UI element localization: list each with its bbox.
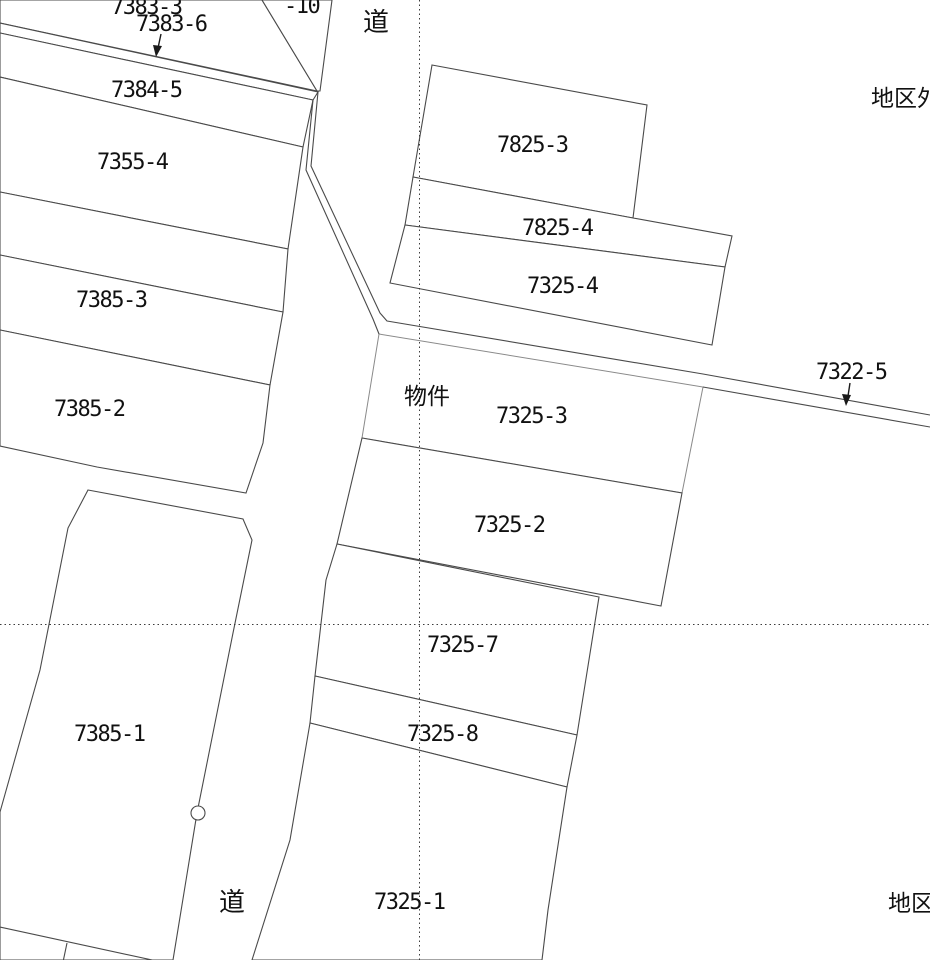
parcel-label-7325-4: 7325-4 bbox=[527, 274, 599, 299]
parcel-label-7322-5: 7322-5 bbox=[816, 360, 887, 385]
parcel-label-7825-4: 7825-4 bbox=[522, 216, 594, 241]
ditch-strip-lower-line bbox=[306, 100, 379, 334]
district-label-top-right: 地区外 bbox=[871, 86, 930, 112]
road-label-top: 道 bbox=[363, 8, 389, 38]
parcel-label-7325-3: 7325-3 bbox=[496, 404, 567, 429]
parcel-label-7325-2: 7325-2 bbox=[474, 513, 545, 538]
parcel-label-7325-8: 7325-8 bbox=[407, 722, 478, 747]
parcel-label-7825-3: 7825-3 bbox=[497, 133, 568, 158]
parcel-label-7385-2: 7385-2 bbox=[54, 397, 125, 422]
parcel-label-minus-10: -10 bbox=[284, 0, 319, 19]
parcel-label-7325-7: 7325-7 bbox=[427, 633, 498, 658]
road-label-bottom: 道 bbox=[219, 888, 245, 918]
parcel-label-7385-1: 7385-1 bbox=[74, 722, 145, 747]
parcel-label-7355-4: 7355-4 bbox=[97, 150, 169, 175]
cadastral-map: 7383-3 7383-6 -10 道 7384-5 7825-3 地区外 73… bbox=[0, 0, 930, 960]
district-label-bottom-right: 地区外 bbox=[888, 891, 930, 917]
parcel-label-7325-1: 7325-1 bbox=[374, 890, 445, 915]
map-canvas: 7383-3 7383-6 -10 道 7384-5 7825-3 地区外 73… bbox=[0, 0, 930, 960]
property-marker-label: 物件 bbox=[404, 384, 450, 410]
parcel-label-7383-6: 7383-6 bbox=[136, 12, 207, 37]
boundary-point-marker bbox=[191, 806, 205, 820]
parcel-label-7385-3: 7385-3 bbox=[76, 288, 147, 313]
parcel-label-7384-5: 7384-5 bbox=[111, 78, 182, 103]
road-strip-7322-5-lower-line bbox=[703, 387, 930, 427]
